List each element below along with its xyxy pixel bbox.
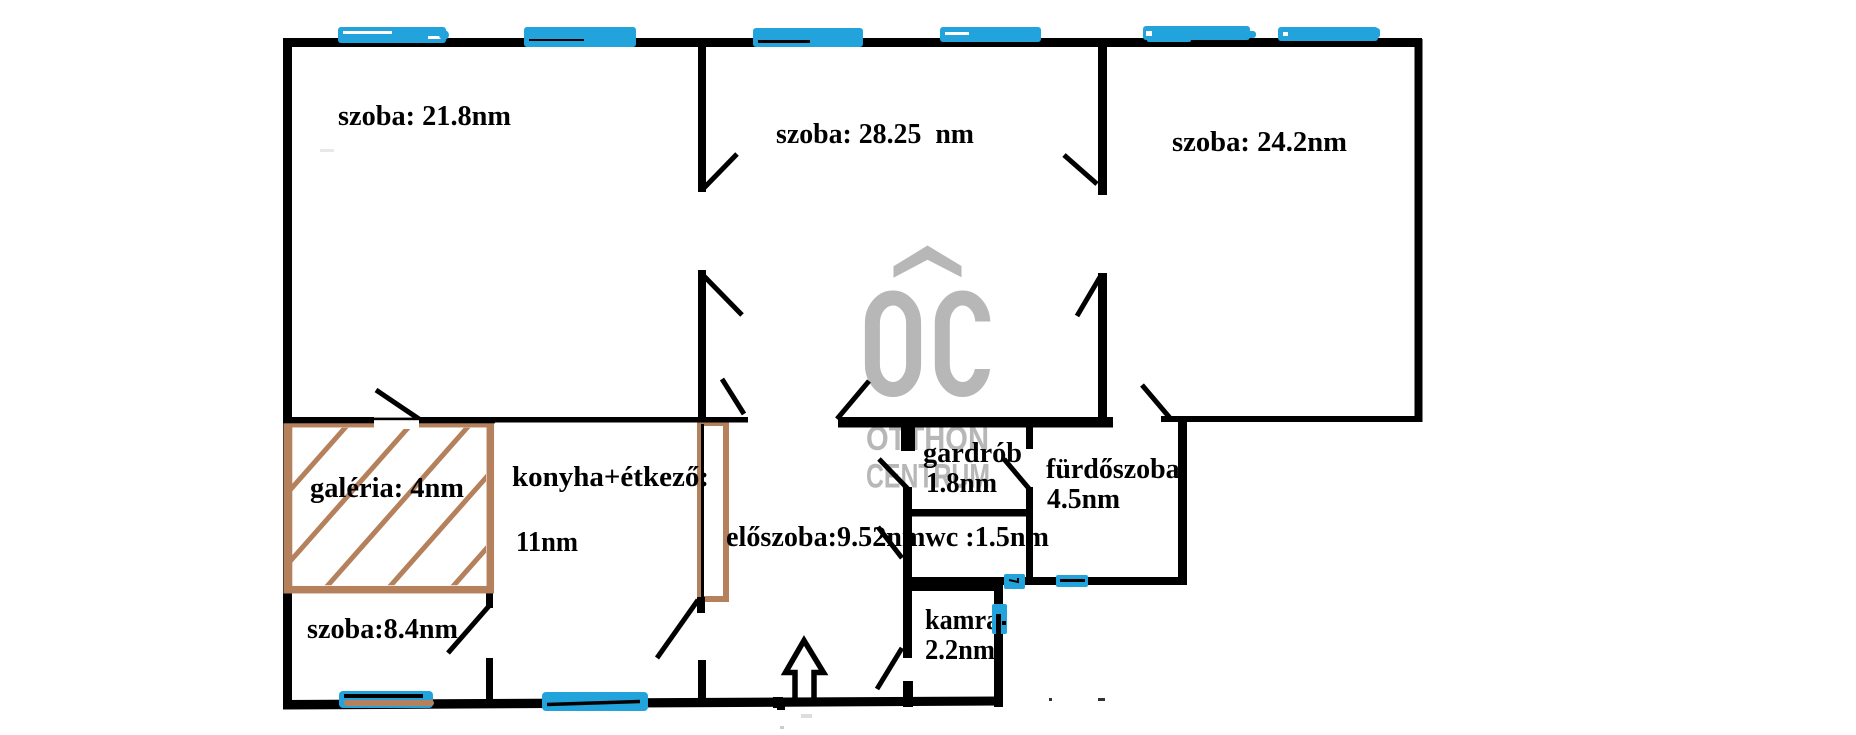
svg-text:szoba: 28.25 nm: szoba: 28.25 nm xyxy=(776,118,974,150)
svg-text:szoba: 24.2nm: szoba: 24.2nm xyxy=(1172,126,1347,158)
svg-text:11nm: 11nm xyxy=(516,526,578,558)
svg-text:4.5nm: 4.5nm xyxy=(1047,483,1120,515)
svg-text:fürdőszoba:: fürdőszoba: xyxy=(1046,453,1189,485)
svg-text:galéria: 4nm: galéria: 4nm xyxy=(310,472,464,504)
svg-text:konyha+étkező:: konyha+étkező: xyxy=(512,461,709,493)
svg-text:1.8nm: 1.8nm xyxy=(926,467,997,499)
svg-text:szoba:8.4nm: szoba:8.4nm xyxy=(307,613,458,645)
svg-text:2.2nm: 2.2nm xyxy=(925,634,995,666)
svg-text:szoba: 21.8nm: szoba: 21.8nm xyxy=(338,100,511,132)
